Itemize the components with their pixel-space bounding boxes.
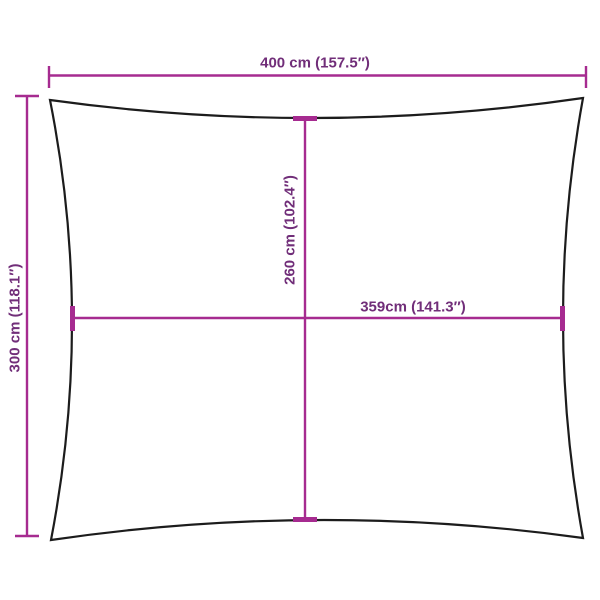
dimension-diagram: 400 cm (157.5″) 300 cm (118.1″) 260 cm (…: [0, 0, 600, 600]
top-width-label: 400 cm (157.5″): [260, 56, 370, 71]
left-height-label: 300 cm (118.1″): [8, 264, 23, 373]
diagram-canvas: [0, 0, 600, 600]
horizontal-center-dimension-line: [72, 306, 563, 331]
center-height-label: 260 cm (102.4″): [283, 175, 298, 285]
center-width-label: 359cm (141.3″): [360, 300, 466, 315]
